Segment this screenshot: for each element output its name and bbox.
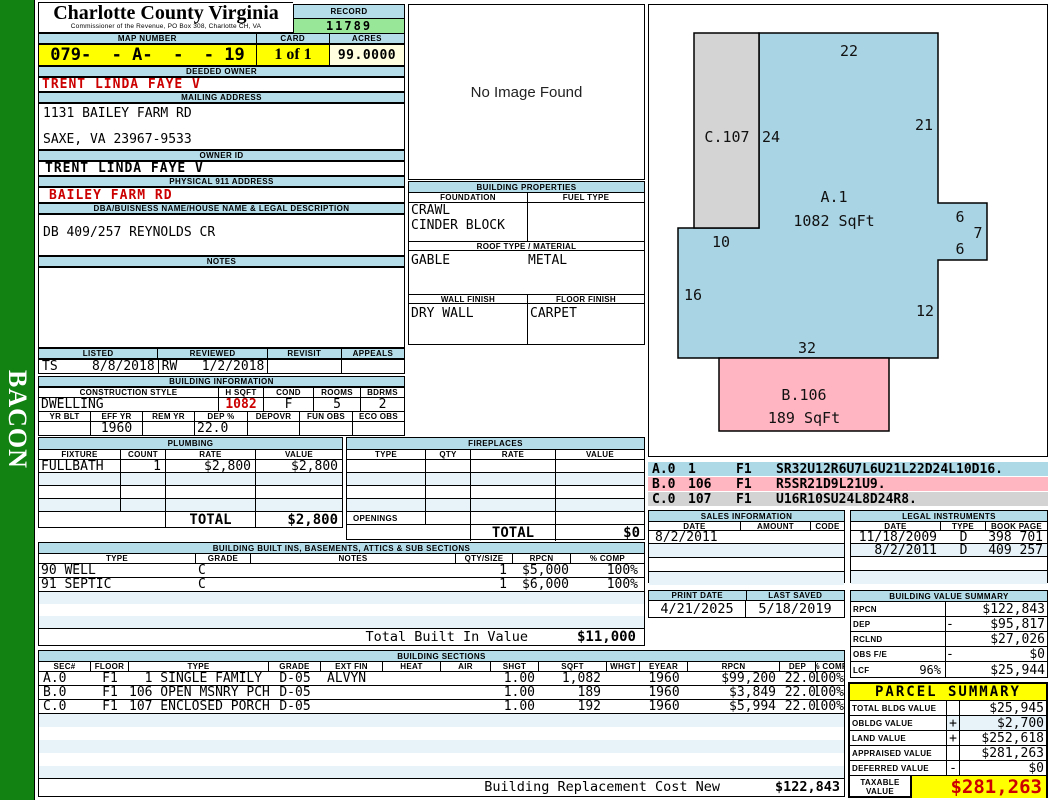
legend-sec: A.0 xyxy=(648,462,688,476)
foundation-label: FOUNDATION xyxy=(409,193,528,202)
style-header-row: CONSTRUCTION STYLE H SQFT COND ROOMS BDR… xyxy=(38,387,405,397)
sqft-cell: 189 xyxy=(539,686,607,699)
qty-size-header: QTY/SIZE xyxy=(456,554,513,563)
area-c-label: C.107 xyxy=(704,128,749,146)
air-header: AIR xyxy=(441,662,491,671)
building-properties-title: BUILDING PROPERTIES xyxy=(409,182,644,193)
review-value-row: TS8/8/2018 RW1/2/2018 xyxy=(38,359,405,374)
type-header: TYPE xyxy=(129,662,269,671)
appeals-label: APPEALS xyxy=(342,348,405,359)
built-ins-header-row: TYPE GRADE NOTES QTY/SIZE RPCN % COMP xyxy=(39,554,644,564)
heat-cell xyxy=(383,700,441,713)
heat-cell xyxy=(383,686,441,699)
shgt-cell: 1.00 xyxy=(491,686,539,699)
comp-cell: 100% xyxy=(571,564,644,577)
empty-row xyxy=(649,558,844,572)
grade-header: GRADE xyxy=(196,554,251,563)
land-label: LAND VALUE xyxy=(850,731,947,745)
county-title: Charlotte County Virginia xyxy=(39,3,293,23)
type-cell: 91 SEPTIC xyxy=(39,578,196,591)
empty-row xyxy=(39,727,844,740)
sec-cell: A.0 xyxy=(39,672,91,685)
remyr-value xyxy=(143,422,195,435)
rclnd-value: $27,026 xyxy=(956,632,1047,646)
summary-row: RCLND $27,026 xyxy=(851,632,1047,647)
rpcn-cell: $99,200 xyxy=(688,672,780,685)
rclnd-label: RCLND xyxy=(851,632,946,646)
acres-value: 99.0000 xyxy=(330,44,405,66)
op xyxy=(947,701,960,715)
legal-book-page-cell: 409 257 xyxy=(986,544,1047,556)
fuel-value xyxy=(528,203,644,241)
dba-value: DB 409/257 REYNOLDS CR xyxy=(39,215,404,240)
print-info: PRINT DATE LAST SAVED 4/21/2025 5/18/201… xyxy=(648,590,845,618)
appraised-value: $281,263 xyxy=(960,746,1046,760)
openings-label: OPENINGS xyxy=(347,512,426,524)
map-value-row: 079- - A- - - 19 1 of 1 99.0000 xyxy=(38,44,405,66)
rpcn-header: RPCN xyxy=(688,662,780,671)
taxable-label: TAXABLE VALUE xyxy=(850,776,912,798)
sections-header-row: SEC# FLOOR TYPE GRADE EXT FIN HEAT AIR S… xyxy=(39,662,844,672)
qty-size-cell: 1 xyxy=(456,578,513,591)
style-label: CONSTRUCTION STYLE xyxy=(39,388,219,397)
value-header: VALUE xyxy=(256,450,342,459)
rate-cell: $2,800 xyxy=(166,460,256,472)
value-header: VALUE xyxy=(556,450,644,459)
rooms-label: ROOMS xyxy=(314,388,361,397)
finish-header-row: WALL FINISH FLOOR FINISH xyxy=(409,294,644,304)
sales-header-row: DATE AMOUNT CODE xyxy=(649,522,844,531)
floor-finish-value: CARPET xyxy=(528,304,644,345)
count-cell: 1 xyxy=(121,460,166,472)
no-image-text: No Image Found xyxy=(471,84,583,101)
dim-24: 24 xyxy=(762,128,780,146)
record-number: 11789 xyxy=(293,19,405,34)
eyear-header: EYEAR xyxy=(640,662,688,671)
depovr-value xyxy=(248,422,300,435)
table-row: B.0 F1 106 OPEN MSNRY PCH D-05 1.00 189 … xyxy=(39,686,844,700)
dim-21: 21 xyxy=(915,116,933,134)
empty-row xyxy=(851,571,1047,584)
ecoobs-value xyxy=(353,422,404,435)
roof-material-value: METAL xyxy=(528,251,644,294)
legend-code: 106 xyxy=(688,477,736,491)
sections-footer-row: Building Replacement Cost New $122,843 xyxy=(39,778,844,794)
footprint-sketch: 22 21 C.107 24 A.1 1082 SqFt 6 7 6 10 16… xyxy=(649,5,1047,456)
heat-cell xyxy=(383,672,441,685)
notes-header: NOTES xyxy=(251,554,456,563)
op xyxy=(946,662,956,678)
dim-10: 10 xyxy=(712,233,730,251)
type-cell: 107 ENCLOSED PORCH xyxy=(129,700,269,713)
revisit-value xyxy=(268,360,342,373)
type-cell: 1 SINGLE FAMILY xyxy=(129,672,269,685)
floor-finish-label: FLOOR FINISH xyxy=(528,295,644,303)
qty-header: QTY xyxy=(426,450,471,459)
legend-floor: F1 xyxy=(736,477,776,491)
taxable-row: TAXABLE VALUE $281,263 xyxy=(850,776,1046,798)
deeded-owner-label: DEEDED OWNER xyxy=(38,66,405,77)
empty-row xyxy=(39,486,342,499)
area-b-sqft: 189 SqFt xyxy=(768,409,840,427)
rpcn-header: RPCN xyxy=(513,554,571,563)
empty-row xyxy=(39,604,644,616)
op xyxy=(946,632,956,646)
table-row: FULLBATH 1 $2,800 $2,800 xyxy=(39,460,342,473)
land-value: $252,618 xyxy=(960,731,1046,745)
cond-value: F xyxy=(264,398,314,411)
county-subtitle: Commissioner of the Revenue, PO Box 308,… xyxy=(39,23,293,30)
empty-row xyxy=(347,460,644,473)
record-label: RECORD xyxy=(293,4,405,19)
comp-header: % COMP xyxy=(816,662,844,671)
year-header-row: YR BLT EFF YR REM YR DEP % DEPOVR FUN OB… xyxy=(38,411,405,421)
funobs-label: FUN OBS xyxy=(300,412,353,421)
record-box: RECORD 11789 xyxy=(293,4,405,32)
dep-label: DEP xyxy=(851,617,946,631)
dim-22: 22 xyxy=(840,42,858,60)
building-properties-box: BUILDING PROPERTIES FOUNDATION FUEL TYPE… xyxy=(408,181,645,345)
remyr-label: REM YR xyxy=(143,412,195,421)
hsqft-label: H SQFT xyxy=(219,388,264,397)
built-ins-total-value: $11,000 xyxy=(556,629,644,645)
legal-type-cell: D xyxy=(941,544,986,556)
empty-row xyxy=(851,557,1047,571)
date-header: DATE xyxy=(649,522,741,530)
total-bldg-label: TOTAL BLDG VALUE xyxy=(850,701,947,715)
whgt-header: WHGT xyxy=(607,662,640,671)
rpcn-cell: $5,994 xyxy=(688,700,780,713)
legend-vector: SR32U12R6U7L6U21L22D24L10D16. xyxy=(776,462,1048,476)
comp-cell: 100% xyxy=(816,672,844,685)
plumbing-table: PLUMBING FIXTURE COUNT RATE VALUE FULLBA… xyxy=(38,437,343,528)
replacement-cost-label: Building Replacement Cost New xyxy=(484,779,720,795)
grade-cell: C xyxy=(196,564,251,577)
obs-fe-label: OBS F/E xyxy=(851,647,946,661)
notes-label: NOTES xyxy=(38,256,405,267)
rooms-value: 5 xyxy=(314,398,361,411)
physical-address-label: PHYSICAL 911 ADDRESS xyxy=(38,176,405,187)
roof-label: ROOF TYPE / MATERIAL xyxy=(409,241,644,251)
op: + xyxy=(947,716,960,730)
summary-row: DEP - $95,817 xyxy=(851,617,1047,632)
built-ins-table: BUILDING BUILT INS, BASEMENTS, ATTICS & … xyxy=(38,542,645,646)
depovr-label: DEPOVR xyxy=(248,412,300,421)
roof-type-value: GABLE xyxy=(409,251,528,294)
yrblt-label: YR BLT xyxy=(39,412,91,421)
op: - xyxy=(946,647,956,661)
lcf-pct: 96% xyxy=(919,663,941,677)
obldg-value: $2,700 xyxy=(960,716,1046,730)
table-row: A.0 F1 1 SINGLE FAMILY D-05 ALVYN 1.00 1… xyxy=(39,672,844,686)
reviewed-label: REVIEWED xyxy=(158,348,268,359)
foundation-value-row: CRAWL CINDER BLOCK xyxy=(409,203,644,241)
sec-cell: C.0 xyxy=(39,700,91,713)
taxable-value: $281,263 xyxy=(950,776,1042,798)
sales-table: SALES INFORMATION DATE AMOUNT CODE 8/2/2… xyxy=(648,510,845,583)
comp-cell: 100% xyxy=(816,686,844,699)
op: - xyxy=(947,761,960,775)
print-header-row: PRINT DATE LAST SAVED xyxy=(648,590,845,601)
foundation-line2: CINDER BLOCK xyxy=(409,218,527,233)
lcf-label-cell: LCF 96% xyxy=(851,662,946,678)
type-header: TYPE xyxy=(39,554,196,563)
grade-cell: D-05 xyxy=(269,700,321,713)
empty-row xyxy=(39,753,844,766)
plumbing-total-row: TOTAL $2,800 xyxy=(39,512,342,528)
obs-fe-value: $0 xyxy=(956,647,1047,661)
dba-box: DB 409/257 REYNOLDS CR xyxy=(38,214,405,256)
yrblt-value xyxy=(39,422,91,435)
obldg-label: OBLDG VALUE xyxy=(850,716,947,730)
physical-address-value: BAILEY FARM RD xyxy=(38,187,405,203)
appeals-value xyxy=(342,360,404,373)
heat-header: HEAT xyxy=(383,662,441,671)
listed-value: TS8/8/2018 xyxy=(39,360,159,373)
parcel-row: OBLDG VALUE + $2,700 xyxy=(850,716,1046,731)
legend-floor: F1 xyxy=(736,462,776,476)
foundation-line1: CRAWL xyxy=(409,203,527,218)
building-sections-title: BUILDING SECTIONS xyxy=(39,651,844,662)
legend-sec: B.0 xyxy=(648,477,688,491)
legend-code: 107 xyxy=(688,492,736,506)
plumbing-total-label: TOTAL xyxy=(166,512,256,528)
summary-row: RPCN $122,843 xyxy=(851,602,1047,617)
empty-row xyxy=(39,592,644,604)
table-row: 8/2/2011 D 409 257 xyxy=(851,544,1047,557)
dim-12: 12 xyxy=(916,302,934,320)
style-value: DWELLING xyxy=(39,398,219,411)
print-date-value: 4/21/2025 xyxy=(649,601,746,617)
notes-cell xyxy=(251,564,456,577)
sketch-legend: A.0 1 F1 SR32U12R6U7L6U21L22D24L10D16. B… xyxy=(648,462,1048,506)
comp-cell: 100% xyxy=(816,700,844,713)
map-number-label: MAP NUMBER xyxy=(38,33,257,44)
sale-date-cell: 8/2/2011 xyxy=(649,531,741,543)
effyr-value: 1960 xyxy=(91,422,143,435)
card-label: CARD xyxy=(257,33,330,44)
legend-floor: F1 xyxy=(736,492,776,506)
empty-row xyxy=(39,714,844,727)
type-cell: 90 WELL xyxy=(39,564,196,577)
table-row: 11/18/2009 D 398 701 xyxy=(851,531,1047,544)
extfin-header: EXT FIN xyxy=(321,662,383,671)
deferred-label: DEFERRED VALUE xyxy=(850,761,947,775)
parcel-summary: PARCEL SUMMARY TOTAL BLDG VALUE $25,945 … xyxy=(848,682,1048,798)
print-date-label: PRINT DATE xyxy=(648,590,747,601)
plumbing-total-value: $2,800 xyxy=(256,512,342,528)
area-b-label: B.106 xyxy=(781,386,826,404)
dim-16: 16 xyxy=(684,286,702,304)
lcf-value: $25,944 xyxy=(956,662,1047,678)
notes-cell xyxy=(251,578,456,591)
extfin-cell: ALVYN xyxy=(321,672,383,685)
value-cell: $2,800 xyxy=(256,460,342,472)
replacement-cost-value: $122,843 xyxy=(744,779,844,795)
dba-label: DBA/BUISNESS NAME/HOUSE NAME & LEGAL DES… xyxy=(38,203,405,214)
legal-title: LEGAL INSTRUMENTS xyxy=(851,511,1047,522)
plumbing-header-row: FIXTURE COUNT RATE VALUE xyxy=(39,450,342,460)
op: - xyxy=(946,617,956,631)
code-header: CODE xyxy=(811,522,844,530)
air-cell xyxy=(441,700,491,713)
built-ins-total-label: Total Built In Value xyxy=(365,629,528,645)
table-row: C.0 F1 107 ENCLOSED PORCH D-05 1.00 192 … xyxy=(39,700,844,714)
legend-vector: U16R10SU24L8D24R8. xyxy=(776,492,1048,506)
legend-row-b: B.0 106 F1 R5SR21D9L21U9. xyxy=(648,477,1048,491)
sales-title: SALES INFORMATION xyxy=(649,511,844,522)
empty-row xyxy=(39,766,844,778)
value-summary-title: BUILDING VALUE SUMMARY xyxy=(851,591,1047,602)
type-header: TYPE xyxy=(347,450,426,459)
empty-row xyxy=(347,473,644,486)
sale-code-cell xyxy=(811,531,844,543)
legal-table: LEGAL INSTRUMENTS DATE TYPE BOOK PAGE 11… xyxy=(850,510,1048,583)
appraised-label: APPRAISED VALUE xyxy=(850,746,947,760)
empty-row xyxy=(649,572,844,585)
reviewed-date: 1/2/2018 xyxy=(202,360,265,373)
binder-edge: BACON xyxy=(0,0,35,800)
rate-header: RATE xyxy=(471,450,556,459)
reviewed-by: RW xyxy=(162,360,178,373)
parcel-row: TOTAL BLDG VALUE $25,945 xyxy=(850,701,1046,716)
grade-header: GRADE xyxy=(269,662,321,671)
built-ins-title: BUILDING BUILT INS, BASEMENTS, ATTICS & … xyxy=(39,543,644,554)
legend-row-c: C.0 107 F1 U16R10SU24L8D24R8. xyxy=(648,492,1048,506)
shgt-header: SHGT xyxy=(491,662,539,671)
rpcn-cell: $3,849 xyxy=(688,686,780,699)
extfin-cell xyxy=(321,686,383,699)
op xyxy=(946,602,956,616)
rpcn-cell: $6,000 xyxy=(513,578,571,591)
dep-cell: 22.0 xyxy=(780,672,816,685)
owner-id-label: OWNER ID xyxy=(38,150,405,161)
legend-vector: R5SR21D9L21U9. xyxy=(776,477,1048,491)
book-page-header: BOOK PAGE xyxy=(986,522,1047,530)
whgt-cell xyxy=(607,700,640,713)
type-cell: 106 OPEN MSNRY PCH xyxy=(129,686,269,699)
rate-header: RATE xyxy=(166,450,256,459)
table-row: 8/2/2011 xyxy=(649,531,844,544)
legal-header-row: DATE TYPE BOOK PAGE xyxy=(851,522,1047,531)
deferred-value: $0 xyxy=(960,761,1046,775)
listed-date: 8/8/2018 xyxy=(92,360,155,373)
parcel-row: APPRAISED VALUE $281,263 xyxy=(850,746,1046,761)
sale-amount-cell xyxy=(741,531,811,543)
air-cell xyxy=(441,686,491,699)
rpcn-cell: $5,000 xyxy=(513,564,571,577)
empty-row xyxy=(347,499,644,512)
effyr-label: EFF YR xyxy=(91,412,143,421)
sqft-header: SQFT xyxy=(539,662,607,671)
mailing-address-label: MAILING ADDRESS xyxy=(38,92,405,103)
parcel-row: DEFERRED VALUE - $0 xyxy=(850,761,1046,776)
table-row: 90 WELL C 1 $5,000 100% xyxy=(39,564,644,578)
type-header: TYPE xyxy=(941,522,986,530)
fireplaces-table: FIREPLACES TYPE QTY RATE VALUE OPENINGS … xyxy=(346,437,645,540)
empty-row xyxy=(39,740,844,753)
listed-by: TS xyxy=(42,360,58,373)
area-a-sqft: 1082 SqFt xyxy=(793,212,874,230)
revisit-label: REVISIT xyxy=(268,348,342,359)
county-header: Charlotte County Virginia Commissioner o… xyxy=(38,2,293,33)
fixture-cell: FULLBATH xyxy=(39,460,121,472)
legal-date-cell: 11/18/2009 xyxy=(851,531,941,543)
fireplaces-total-label: TOTAL xyxy=(471,525,556,541)
dim-6b: 6 xyxy=(955,240,964,258)
legend-sec: C.0 xyxy=(648,492,688,506)
sqft-cell: 192 xyxy=(539,700,607,713)
print-value-row: 4/21/2025 5/18/2019 xyxy=(648,601,845,618)
empty-row xyxy=(649,544,844,558)
shgt-cell: 1.00 xyxy=(491,700,539,713)
grade-cell: C xyxy=(196,578,251,591)
owner-id-value: TRENT LINDA FAYE V xyxy=(38,161,405,176)
fireplaces-header-row: TYPE QTY RATE VALUE xyxy=(347,450,644,460)
eyear-cell: 1960 xyxy=(640,686,688,699)
sec-header: SEC# xyxy=(39,662,91,671)
floor-cell: F1 xyxy=(91,672,129,685)
bdrms-value: 2 xyxy=(361,398,404,411)
empty-row xyxy=(39,616,644,628)
legend-code: 1 xyxy=(688,462,736,476)
legal-date-cell: 8/2/2011 xyxy=(851,544,941,556)
area-a-label: A.1 xyxy=(820,188,847,206)
parcel-row: LAND VALUE + $252,618 xyxy=(850,731,1046,746)
dim-6a: 6 xyxy=(955,208,964,226)
mailing-line1: 1131 BAILEY FARM RD xyxy=(39,104,404,121)
finish-value-row: DRY WALL CARPET xyxy=(409,304,644,345)
empty-row xyxy=(347,486,644,499)
amount-header: AMOUNT xyxy=(741,522,811,530)
notes-box xyxy=(38,267,405,348)
dim-7: 7 xyxy=(973,224,982,242)
empty-row xyxy=(39,473,342,486)
qty-size-cell: 1 xyxy=(456,564,513,577)
grade-cell: D-05 xyxy=(269,672,321,685)
last-saved-value: 5/18/2019 xyxy=(746,601,844,617)
floor-header: FLOOR xyxy=(91,662,129,671)
funobs-value xyxy=(300,422,353,435)
cond-label: COND xyxy=(264,388,314,397)
wall-finish-label: WALL FINISH xyxy=(409,295,528,303)
legend-row-a: A.0 1 F1 SR32U12R6U7L6U21L22D24L10D16. xyxy=(648,462,1048,476)
floor-cell: F1 xyxy=(91,700,129,713)
legal-type-cell: D xyxy=(941,531,986,543)
grade-cell: D-05 xyxy=(269,686,321,699)
photo-box: No Image Found xyxy=(408,4,645,180)
dep-label: DEP % xyxy=(195,412,248,421)
plumbing-title: PLUMBING xyxy=(39,438,342,450)
binder-label: BACON xyxy=(2,370,32,450)
dep-cell: 22.0 xyxy=(780,686,816,699)
total-bldg-value: $25,945 xyxy=(960,701,1046,715)
lcf-label: LCF xyxy=(853,666,869,675)
foundation-header-row: FOUNDATION FUEL TYPE xyxy=(409,193,644,203)
summary-row: LCF 96% $25,944 xyxy=(851,662,1047,678)
dim-32: 32 xyxy=(798,339,816,357)
style-value-row: DWELLING 1082 F 5 2 xyxy=(38,397,405,411)
comp-cell: 100% xyxy=(571,578,644,591)
whgt-cell xyxy=(607,672,640,685)
dep-value: $95,817 xyxy=(956,617,1047,631)
fireplaces-total-row: TOTAL $0 xyxy=(347,525,644,541)
fuel-label: FUEL TYPE xyxy=(528,193,644,202)
building-sections-table: BUILDING SECTIONS SEC# FLOOR TYPE GRADE … xyxy=(38,650,845,797)
taxable-value-cell: $281,263 xyxy=(912,776,1046,798)
building-info-title: BUILDING INFORMATION xyxy=(38,376,405,387)
wall-finish-value: DRY WALL xyxy=(409,304,528,345)
